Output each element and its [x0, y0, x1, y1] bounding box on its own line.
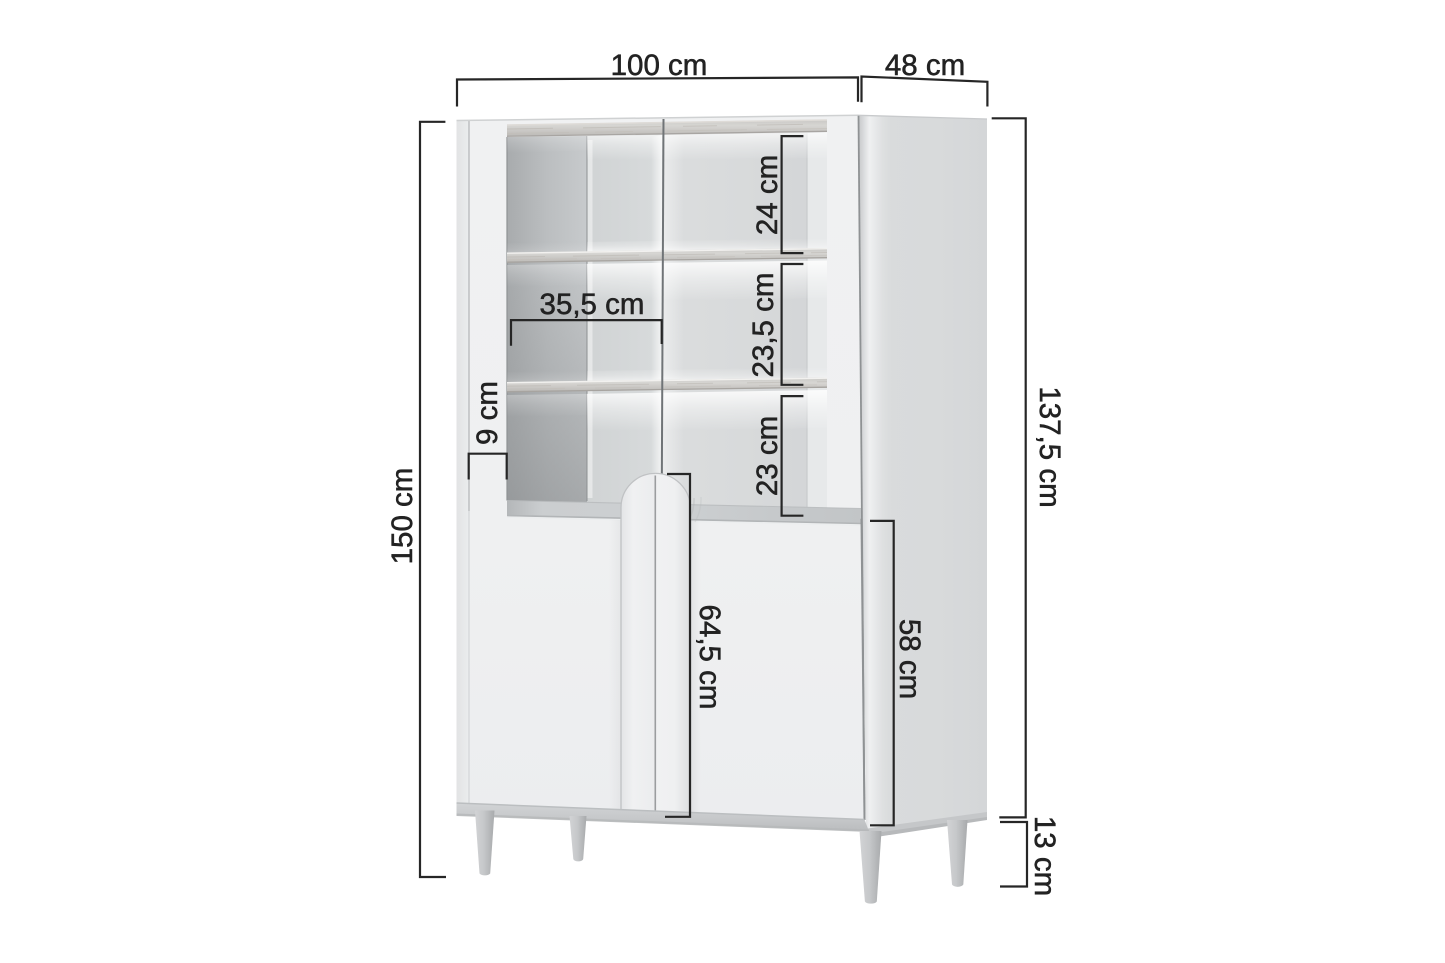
svg-text:13 cm: 13 cm	[1028, 816, 1061, 896]
svg-text:35,5 cm: 35,5 cm	[540, 288, 645, 321]
svg-text:58 cm: 58 cm	[893, 619, 926, 699]
svg-text:24 cm: 24 cm	[751, 155, 784, 235]
svg-text:23 cm: 23 cm	[751, 416, 784, 496]
svg-text:64,5 cm: 64,5 cm	[693, 605, 726, 710]
svg-text:9 cm: 9 cm	[471, 381, 504, 445]
svg-text:100 cm: 100 cm	[611, 49, 708, 82]
svg-text:48 cm: 48 cm	[885, 49, 965, 82]
svg-text:137,5 cm: 137,5 cm	[1033, 386, 1066, 507]
svg-text:150 cm: 150 cm	[386, 468, 419, 565]
svg-text:23,5 cm: 23,5 cm	[747, 273, 780, 378]
